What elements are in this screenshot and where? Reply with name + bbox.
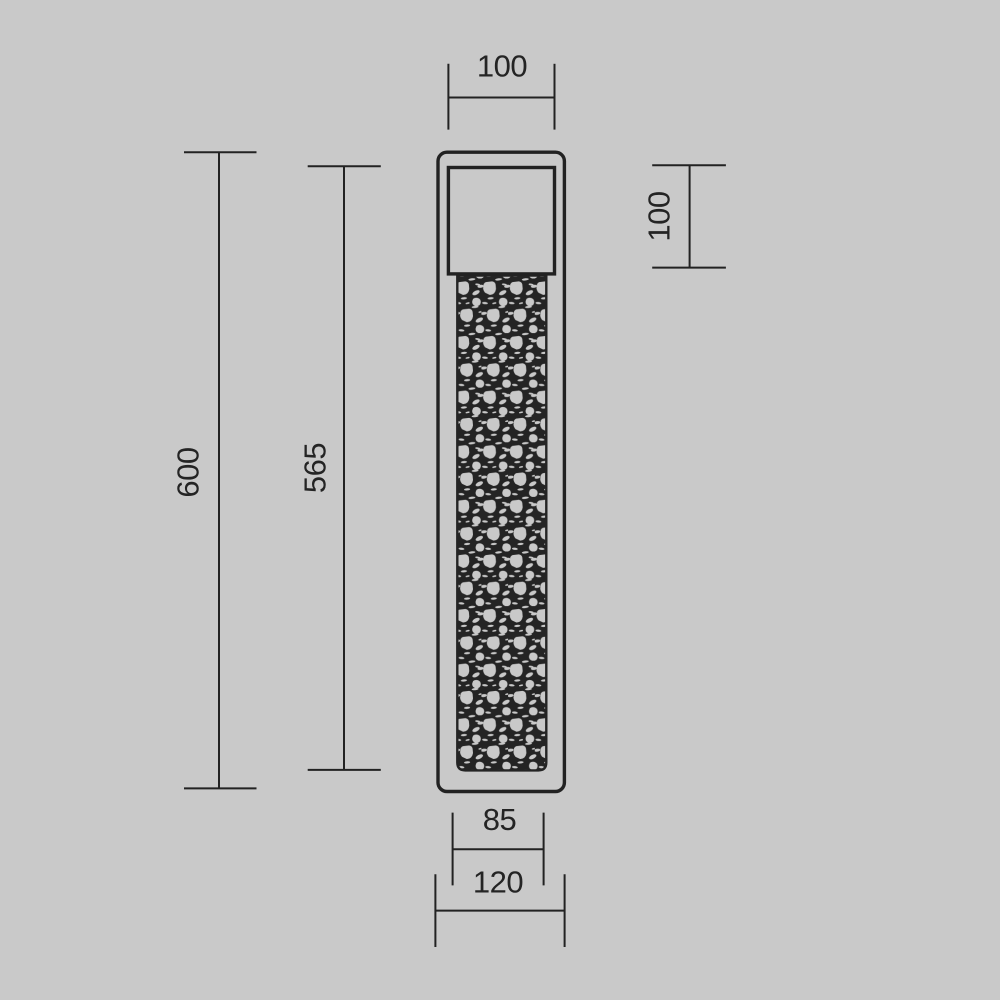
svg-text:100: 100	[641, 191, 676, 241]
svg-text:120: 120	[473, 865, 523, 900]
svg-text:85: 85	[483, 802, 516, 837]
svg-text:565: 565	[298, 443, 333, 493]
svg-text:600: 600	[171, 447, 206, 497]
svg-text:100: 100	[477, 49, 527, 84]
